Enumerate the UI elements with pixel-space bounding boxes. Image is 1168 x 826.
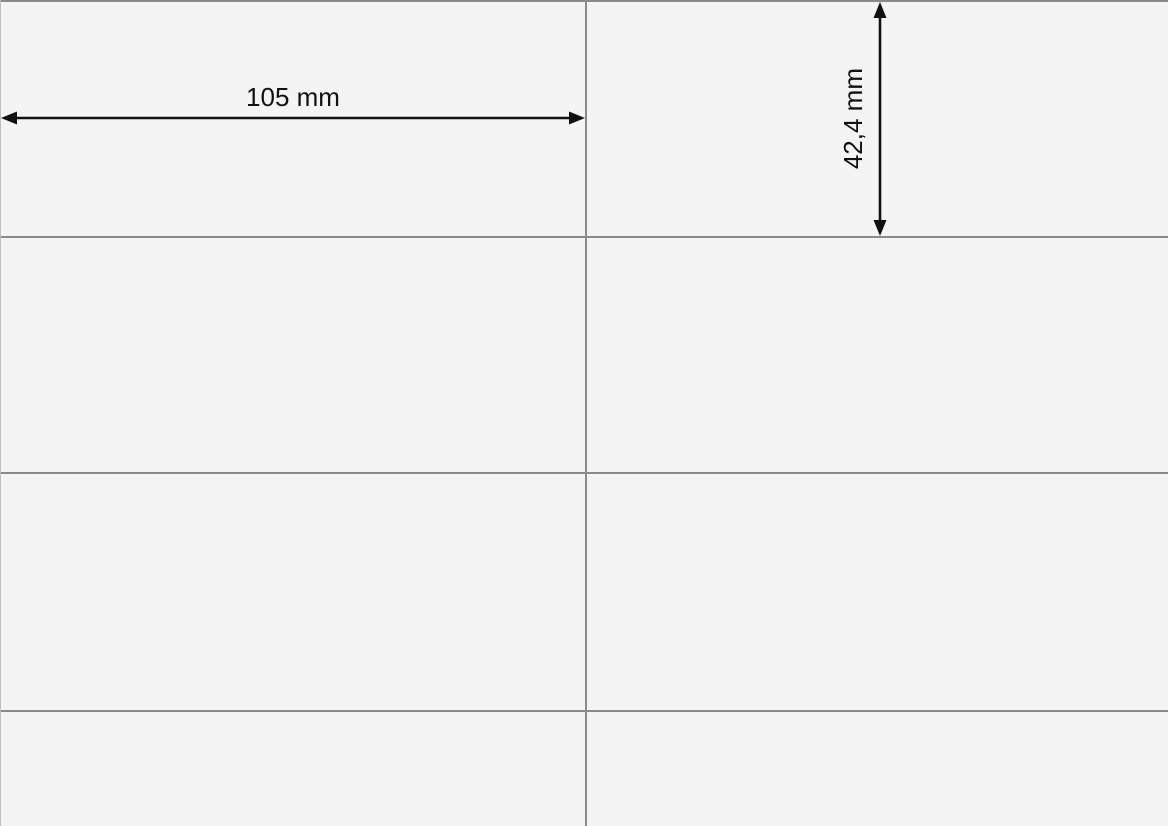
width-dimension-arrow [0, 106, 586, 130]
grid-line-row-1 [0, 236, 1168, 238]
height-dimension-label: 42,4 mm [836, 68, 870, 169]
label-cell-r4c2 [587, 712, 1168, 826]
grid-line-row-3 [0, 710, 1168, 712]
label-sheet: 105 mm 42,4 mm [0, 0, 1168, 826]
label-cell-r2c2 [587, 238, 1168, 472]
label-cell-r3c1 [0, 474, 585, 710]
height-dimension-arrow [868, 1, 892, 237]
grid-line-row-2 [0, 472, 1168, 474]
label-cell-r2c1 [0, 238, 585, 472]
height-dimension-label-box: 42,4 mm [836, 2, 870, 236]
grid-line-row-top [0, 0, 1168, 2]
label-cell-r3c2 [587, 474, 1168, 710]
label-cell-r4c1 [0, 712, 585, 826]
